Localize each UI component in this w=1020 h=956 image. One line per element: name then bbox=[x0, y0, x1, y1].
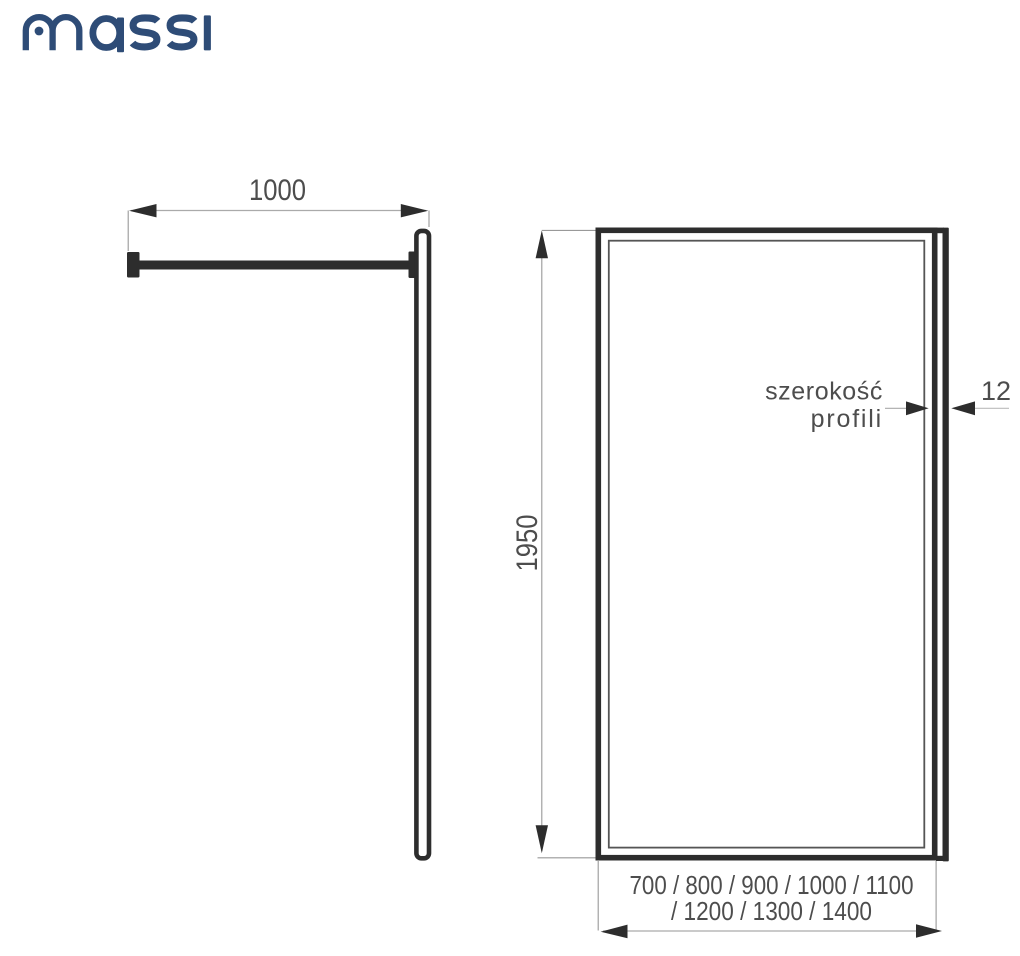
svg-text:szerokość: szerokość bbox=[765, 378, 883, 406]
svg-text:/ 1200 / 1300 / 1400: / 1200 / 1300 / 1400 bbox=[671, 898, 872, 926]
svg-text:12: 12 bbox=[981, 376, 1011, 406]
svg-text:700 / 800 / 900 / 1000 / 1100: 700 / 800 / 900 / 1000 / 1100 bbox=[630, 872, 914, 900]
svg-text:1000: 1000 bbox=[249, 174, 306, 207]
svg-text:profili: profili bbox=[811, 405, 883, 433]
svg-text:1950: 1950 bbox=[511, 515, 544, 572]
